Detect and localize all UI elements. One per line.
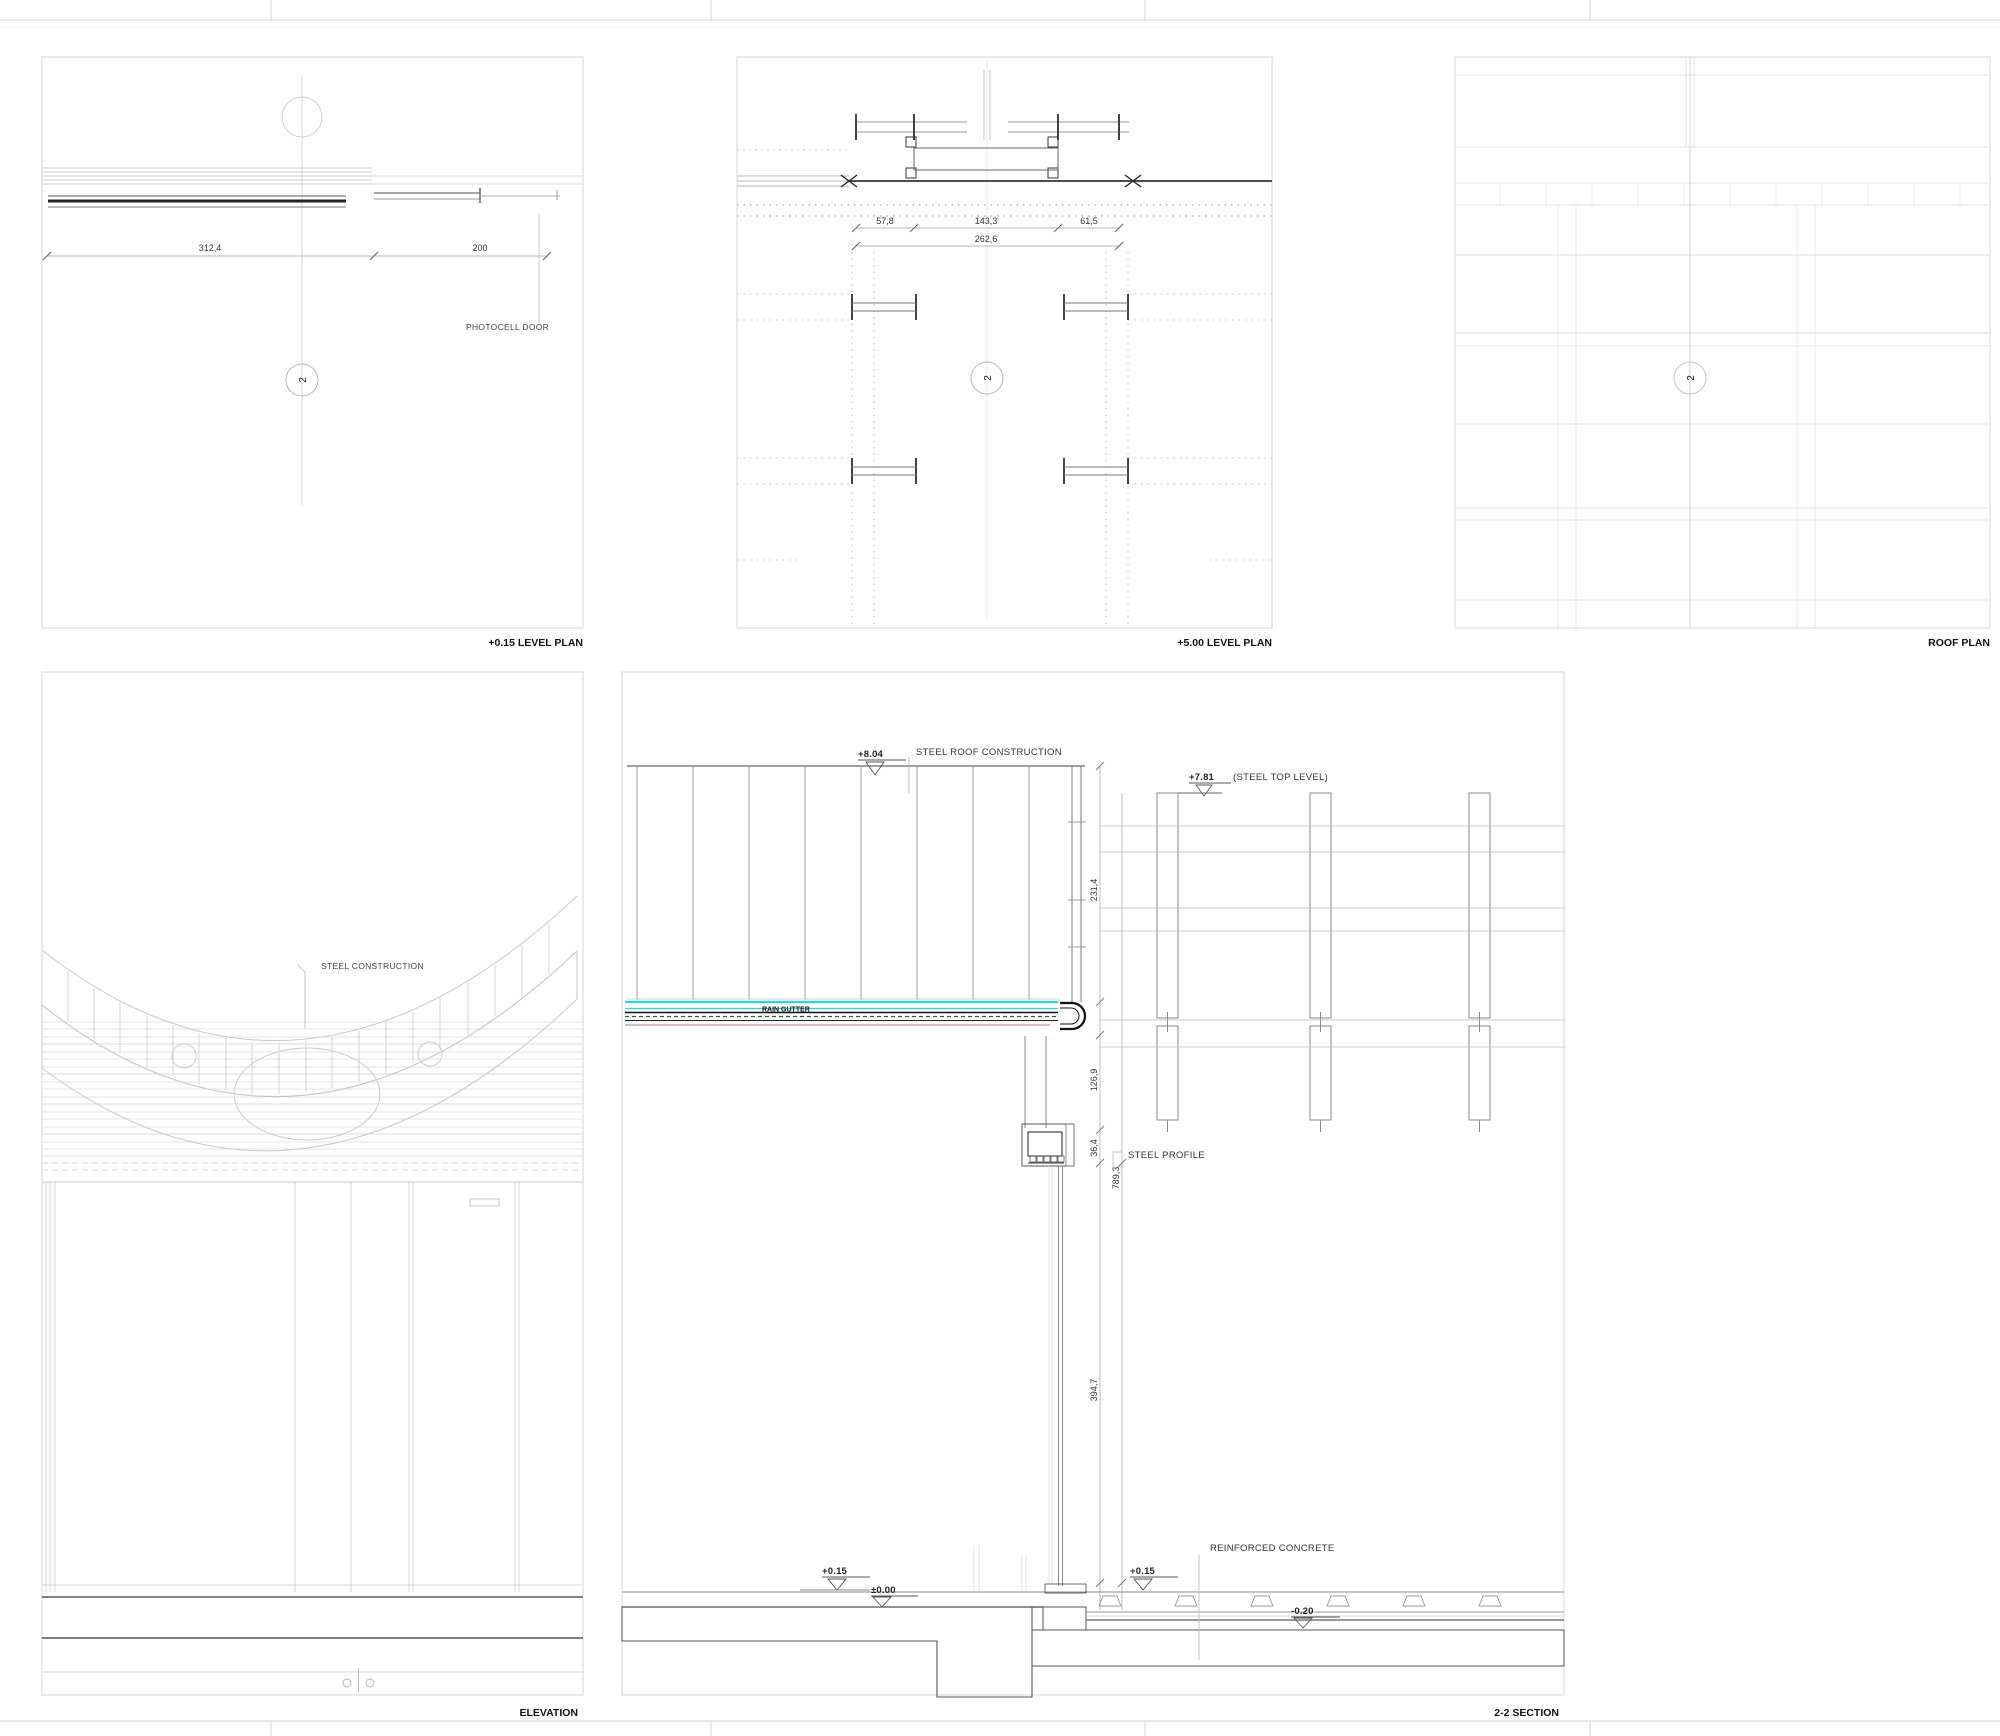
panel-title-level-plan-015: +0.15 LEVEL PLAN xyxy=(488,637,583,649)
photocell-door-label: PHOTOCELL DOOR xyxy=(466,322,549,332)
dim-312-4: 312,4 xyxy=(199,243,222,253)
roof-panels xyxy=(627,766,1086,1002)
panel-level-plan-015: 312,4 200 PHOTOCELL DOOR 2 +0.15 LEVEL P… xyxy=(42,57,583,649)
floor-assembly xyxy=(622,1584,1564,1697)
panel-border xyxy=(737,57,1272,628)
panel-elevation: STEEL CONSTRUCTION ELEVATION xyxy=(42,672,583,1719)
dim-789-3: 789,3 xyxy=(1111,1167,1121,1190)
level-plus15-right-value: +0.15 xyxy=(1130,1566,1156,1577)
steel-roof-label: STEEL ROOF CONSTRUCTION xyxy=(916,747,1062,758)
left-track-lines xyxy=(737,176,849,186)
dim-61-5: 61,5 xyxy=(1080,216,1098,226)
elevation-marker-arrow-icon xyxy=(560,1385,583,1408)
level-marker-minus20: -0.20 xyxy=(1287,1603,1347,1628)
dim-36-4: 36,4 xyxy=(1089,1139,1099,1157)
top-wall-rails xyxy=(856,122,1129,132)
dotted-guides-vertical xyxy=(852,252,1128,624)
section-marker: 2 xyxy=(971,362,1021,394)
level-zero-value: ±0.00 xyxy=(871,1585,896,1596)
steel-v-body xyxy=(42,951,577,1151)
door-leaf-2 xyxy=(374,188,560,203)
dim-262-6: 262,6 xyxy=(975,234,998,244)
floor-pedestals xyxy=(1099,1596,1501,1606)
level-marker-zero: ±0.00 xyxy=(868,1582,920,1607)
drawing-sheet: 312,4 200 PHOTOCELL DOOR 2 +0.15 LEVEL P… xyxy=(0,0,2000,1736)
fascia-ticks xyxy=(68,923,549,1094)
panel-section: +8.04 STEEL ROOF CONSTRUCTION +7.81 (STE… xyxy=(622,672,1564,1719)
hanger-rod xyxy=(1059,1166,1063,1586)
dim-57-8: 57,8 xyxy=(876,216,894,226)
door-closer-box xyxy=(470,1199,499,1206)
steel-profile-detail xyxy=(1022,1124,1074,1166)
panel-level-plan-500: 57,8 143,3 61,5 262,6 xyxy=(737,57,1272,649)
panel-border xyxy=(42,57,583,628)
section-arrow-icon xyxy=(1003,366,1021,390)
concrete-slab-right xyxy=(1032,1630,1564,1666)
dotted-lines xyxy=(737,205,1272,216)
cladding-lines xyxy=(42,1022,583,1156)
section-arrow-icon xyxy=(1706,366,1724,390)
section-arrow-icon xyxy=(318,368,336,392)
roof-grid-verticals xyxy=(1558,57,1815,628)
steel-profile-callout: STEEL PROFILE xyxy=(1113,1150,1205,1168)
concrete-slab-left xyxy=(622,1607,1032,1697)
circle-hole-right xyxy=(418,1042,442,1066)
dotted-guides-horizontal xyxy=(737,294,1272,560)
level-triangle-icon xyxy=(873,1597,891,1607)
steel-construction-label: STEEL CONSTRUCTION xyxy=(321,961,424,971)
level-minus20-value: -0.20 xyxy=(1291,1606,1314,1617)
dim-200: 200 xyxy=(472,243,487,253)
level-roof-value: +8.04 xyxy=(858,749,884,760)
flange-ticks xyxy=(856,114,1119,140)
clip-plates xyxy=(906,137,1058,178)
wall-strip xyxy=(625,1036,1046,1133)
ground-band xyxy=(42,1597,583,1672)
steel-construction-leader-2 xyxy=(298,965,305,972)
section-marker: 2 xyxy=(286,364,336,396)
panel-title-level-plan-500: +5.00 LEVEL PLAN xyxy=(1177,637,1272,649)
level-plus15-left-value: +0.15 xyxy=(822,1566,848,1577)
plan-beam-row-2 xyxy=(852,458,1128,484)
section-marker-number: 2 xyxy=(983,375,994,381)
circle-hole-left xyxy=(172,1044,196,1068)
horizontal-rails xyxy=(1100,826,1564,1047)
panel-title-section: 2-2 SECTION xyxy=(1494,1707,1559,1719)
steel-profile-label: STEEL PROFILE xyxy=(1128,1150,1205,1161)
sheet-frame-bottom xyxy=(0,1721,2000,1736)
storefront-mullions xyxy=(46,1182,519,1592)
reinforced-concrete-label: REINFORCED CONCRETE xyxy=(1210,1543,1334,1554)
threshold-block xyxy=(1043,1607,1086,1630)
insulation-hatch xyxy=(914,148,1058,170)
panel-border xyxy=(1455,57,1990,628)
level-triangle-icon xyxy=(1134,1579,1152,1590)
dimension-line xyxy=(43,252,551,260)
panel-title-roof-plan: ROOF PLAN xyxy=(1928,637,1990,649)
dim-231-4: 231,4 xyxy=(1089,879,1099,902)
steel-columns xyxy=(1157,793,1490,1132)
door-track-lines xyxy=(42,168,583,184)
level-marker-roof: +8.04 xyxy=(858,749,906,775)
level-marker-plus15-left: +0.15 xyxy=(800,1566,870,1590)
panel-roof-plan: 2 ROOF PLAN xyxy=(1455,57,1990,649)
level-steel-top-value: +7.81 xyxy=(1189,772,1215,783)
dim-143-3: 143,3 xyxy=(975,216,998,226)
roof-band-ticks xyxy=(1500,183,1960,205)
sheet-frame-top xyxy=(0,0,2000,27)
door-leaf xyxy=(44,186,346,214)
section-marker-number: 2 xyxy=(1686,375,1697,381)
gutter-profile xyxy=(1060,1003,1085,1029)
dim-126-9: 126,9 xyxy=(1089,1069,1099,1092)
panel-border xyxy=(622,672,1564,1695)
level-marker-plus15-right: +0.15 xyxy=(1130,1566,1178,1590)
ellipse-hole xyxy=(234,1048,380,1140)
door-frame-guides xyxy=(974,1166,1052,1592)
dashed-joint-lines xyxy=(42,1163,583,1170)
plan-beam-row-1 xyxy=(852,294,1128,320)
level-steel-top-suffix: (STEEL TOP LEVEL) xyxy=(1233,772,1328,783)
gutter-assembly: RAIN GUTTER xyxy=(625,1002,1085,1036)
reinforced-concrete-callout: REINFORCED CONCRETE xyxy=(1199,1543,1334,1660)
level-triangle-icon xyxy=(1196,785,1212,796)
level-triangle-icon xyxy=(866,762,884,775)
level-marker-steel-top: +7.81 (STEEL TOP LEVEL) xyxy=(1168,772,1328,796)
rain-gutter-label: RAIN GUTTER xyxy=(762,1007,810,1014)
dim-394-7: 394,7 xyxy=(1089,1379,1099,1402)
panel-border xyxy=(42,672,583,1695)
level-triangle-icon xyxy=(828,1579,846,1590)
roof-grid-horizontals xyxy=(1455,75,1990,600)
section-marker-number: 2 xyxy=(298,377,309,383)
gutter-profile-inner xyxy=(1060,1008,1079,1024)
panel-title-elevation: ELEVATION xyxy=(519,1707,578,1719)
section-marker: 2 xyxy=(1674,362,1724,394)
